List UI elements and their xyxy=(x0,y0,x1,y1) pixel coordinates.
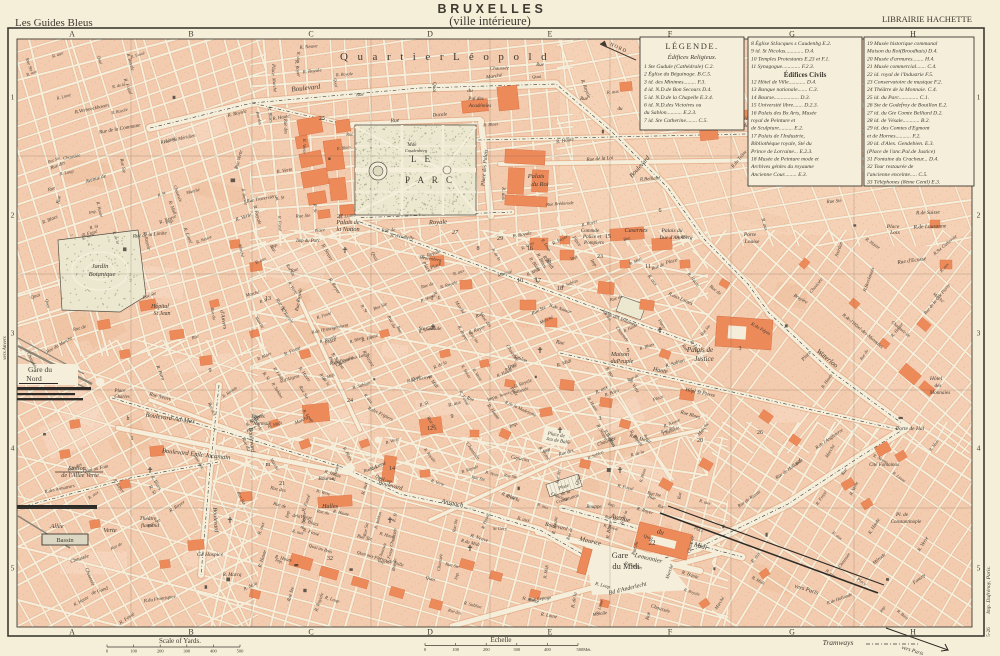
svg-text:Verte: Verte xyxy=(103,527,116,534)
svg-text:10 Temples Protestants E.23 et: 10 Temples Protestants E.23 et F.1. xyxy=(751,56,830,62)
svg-text:15: 15 xyxy=(605,234,611,240)
svg-text:20 Musée d'armures........ H.4: 20 Musée d'armures........ H.4. xyxy=(867,56,935,62)
svg-text:Palais du: Palais du xyxy=(661,228,683,234)
svg-text:3: 3 xyxy=(739,346,742,352)
svg-text:25: 25 xyxy=(319,116,325,122)
svg-text:Quai: Quai xyxy=(532,74,542,79)
svg-text:R. Fossé: R. Fossé xyxy=(277,215,283,232)
svg-text:Louise: Louise xyxy=(744,239,760,245)
svg-text:LÉGENDE.: LÉGENDE. xyxy=(665,41,718,51)
svg-text:Justice: Justice xyxy=(694,355,713,363)
svg-text:12: 12 xyxy=(427,426,433,432)
svg-text:Édifices Religieux.: Édifices Religieux. xyxy=(667,53,717,61)
svg-text:400: 400 xyxy=(210,649,218,654)
svg-text:6: 6 xyxy=(659,208,662,214)
svg-text:Rue de: Rue de xyxy=(380,227,396,234)
svg-text:Quai: Quai xyxy=(431,82,437,93)
svg-text:400: 400 xyxy=(544,647,552,652)
svg-text:3: 3 xyxy=(11,329,15,338)
svg-text:19 Musée historique communal: 19 Musée historique communal xyxy=(867,41,938,47)
svg-text:32: 32 xyxy=(327,556,333,562)
svg-text:200: 200 xyxy=(157,649,165,654)
svg-text:Rouppe: Rouppe xyxy=(585,505,602,510)
svg-text:11 Synagogue............. F.2.: 11 Synagogue............. F.2.3. xyxy=(751,64,814,70)
svg-text:Hôtel: Hôtel xyxy=(929,376,943,382)
svg-text:C: C xyxy=(308,628,313,637)
svg-text:R. Verte: R. Verte xyxy=(301,138,306,154)
svg-text:29: 29 xyxy=(497,236,503,242)
svg-text:Imp du Parc: Imp du Parc xyxy=(295,239,321,244)
svg-text:10: 10 xyxy=(517,278,523,284)
svg-text:300: 300 xyxy=(513,647,521,652)
svg-text:Rue des: Rue des xyxy=(282,118,288,134)
svg-text:St Géry: St Géry xyxy=(493,526,508,531)
svg-text:de l'Allée Verte: de l'Allée Verte xyxy=(61,472,99,479)
svg-text:14 Bourse.................. D.: 14 Bourse.................. D.3. xyxy=(751,95,810,101)
svg-text:royal de Peinture et: royal de Peinture et xyxy=(751,118,796,124)
svg-text:du Roi: du Roi xyxy=(531,181,548,188)
svg-text:des: des xyxy=(935,383,942,389)
svg-text:Place: Place xyxy=(114,389,127,394)
svg-text:20: 20 xyxy=(697,438,703,444)
svg-text:F: F xyxy=(668,628,673,637)
svg-text:Porte: Porte xyxy=(743,232,757,238)
svg-text:30 id. d'Alex. Gendebien. E.3: 30 id. d'Alex. Gendebien. E.3. xyxy=(866,141,934,147)
svg-text:15 Université libre....... D.2: 15 Université libre....... D.2.3. xyxy=(751,103,818,109)
svg-text:9 id. St Nicolas...........: 9 id. St Nicolas............. D.4. xyxy=(751,49,814,55)
svg-text:Chaussée: Chaussée xyxy=(490,66,510,72)
svg-text:26 Ste de Godefroy de Bouillon: 26 Ste de Godefroy de Bouillon E.2. xyxy=(867,102,948,109)
svg-text:26: 26 xyxy=(757,430,763,436)
svg-text:4: 4 xyxy=(11,444,15,453)
svg-text:St Jean: St Jean xyxy=(154,311,171,317)
svg-text:D: D xyxy=(427,628,433,637)
svg-text:5: 5 xyxy=(977,564,981,573)
svg-text:Rue: Rue xyxy=(345,132,353,137)
svg-text:l'ancienne enceinte..... C.5.: l'ancienne enceinte..... C.5. xyxy=(867,172,928,178)
svg-text:2 Église du Béguinage. B.C.5.: 2 Église du Béguinage. B.C.5. xyxy=(644,70,711,78)
svg-text:B: B xyxy=(188,30,193,39)
svg-text:m: m xyxy=(266,462,271,468)
svg-text:(ville intérieure): (ville intérieure) xyxy=(449,14,531,28)
svg-text:vers Anvers: vers Anvers xyxy=(3,336,8,359)
svg-text:Ancienne Cour......... E.3.: Ancienne Cour......... E.3. xyxy=(750,172,807,178)
svg-text:R. aux: R. aux xyxy=(500,186,506,201)
svg-text:Prince de Lorraine... E.2.3.: Prince de Lorraine... E.2.3. xyxy=(750,149,813,155)
svg-text:Rue: Rue xyxy=(389,118,400,125)
svg-text:Académies: Académies xyxy=(468,103,491,109)
svg-text:46: 46 xyxy=(545,258,551,264)
svg-text:3: 3 xyxy=(977,329,981,338)
svg-text:1: 1 xyxy=(11,93,15,102)
svg-text:5: 5 xyxy=(11,564,15,573)
svg-text:22 id. royal de l'Industrie F: 22 id. royal de l'Industrie F.5. xyxy=(867,72,933,78)
svg-text:14: 14 xyxy=(389,466,395,472)
svg-text:12 Hôtel de Ville............: 12 Hôtel de Ville............ D.4. xyxy=(751,80,816,86)
svg-text:Scale of Yards.: Scale of Yards. xyxy=(159,637,201,645)
svg-text:1: 1 xyxy=(131,436,134,442)
svg-text:A: A xyxy=(69,30,75,39)
svg-text:Les Guides Bleus: Les Guides Bleus xyxy=(15,17,93,29)
svg-text:A: A xyxy=(69,628,75,637)
svg-text:17: 17 xyxy=(535,278,541,284)
svg-text:23 Conservatoire de musique F.: 23 Conservatoire de musique F.2. xyxy=(867,80,942,86)
svg-text:5: 5 xyxy=(627,348,630,354)
svg-text:Cité Fontainas: Cité Fontainas xyxy=(869,463,899,468)
svg-text:27: 27 xyxy=(337,214,343,220)
svg-text:1 Ste Gudule (Cathédrale) C.: 1 Ste Gudule (Cathédrale) C.2. xyxy=(644,63,714,70)
svg-text:Loix: Loix xyxy=(889,230,900,236)
svg-text:Gare: Gare xyxy=(612,550,629,560)
svg-text:16 Palais des Bx Arts, Musée: 16 Palais des Bx Arts, Musée xyxy=(751,110,817,116)
svg-text:R.de Lausanne: R.de Lausanne xyxy=(913,223,947,230)
svg-text:Charles: Charles xyxy=(114,395,129,400)
svg-text:28 id. de Vésale............: 28 id. de Vésale............ B.2. xyxy=(867,118,930,124)
svg-text:G: G xyxy=(789,628,795,637)
svg-text:16: 16 xyxy=(527,246,533,252)
svg-text:24: 24 xyxy=(347,398,353,404)
svg-text:LIBRAIRIE HACHETTE: LIBRAIRIE HACHETTE xyxy=(882,14,972,24)
svg-text:et de Hornes........... F.2.: et de Hornes........... F.2. xyxy=(867,133,921,139)
svg-text:2: 2 xyxy=(977,211,981,220)
svg-text:13: 13 xyxy=(265,296,271,302)
svg-text:Porte de Hal: Porte de Hal xyxy=(895,426,925,432)
svg-text:Rue: Rue xyxy=(535,63,544,68)
svg-text:du Sablon........... E.2.3.: du Sablon........... E.2.3. xyxy=(644,110,697,116)
svg-text:500: 500 xyxy=(237,649,245,654)
svg-text:13 Banque nationale....... C.3: 13 Banque nationale....... C.3. xyxy=(751,87,818,93)
svg-text:17 Palais de l'Industrie,: 17 Palais de l'Industrie, xyxy=(751,133,805,139)
svg-text:4: 4 xyxy=(977,444,981,453)
svg-text:Gd Hospice: Gd Hospice xyxy=(197,552,224,558)
svg-text:11: 11 xyxy=(645,264,651,270)
svg-text:Imp. Dufrénoy, Paris.: Imp. Dufrénoy, Paris. xyxy=(985,566,992,615)
svg-text:27: 27 xyxy=(452,230,459,236)
svg-text:du: du xyxy=(618,107,624,112)
svg-text:Coudenberg: Coudenberg xyxy=(405,148,428,153)
svg-text:Pl. de: Pl. de xyxy=(895,512,909,518)
svg-text:500Mèt.: 500Mèt. xyxy=(576,647,591,652)
svg-text:Echelle: Echelle xyxy=(491,636,512,644)
svg-text:18: 18 xyxy=(557,286,563,292)
svg-text:R. St: R. St xyxy=(311,203,317,214)
svg-text:Rue: Rue xyxy=(355,93,365,99)
svg-text:200: 200 xyxy=(483,647,491,652)
svg-text:27 id. du Gte Comte Belliard: 27 id. du Gte Comte Belliard D.2. xyxy=(867,110,943,116)
svg-text:Tramways: Tramways xyxy=(823,638,854,647)
svg-text:5 id. N.D.de la Chapelle E.: 5 id. N.D.de la Chapelle E.3.4. xyxy=(644,95,713,101)
svg-text:300: 300 xyxy=(183,649,191,654)
svg-text:100: 100 xyxy=(452,647,460,652)
svg-text:E: E xyxy=(548,628,553,637)
svg-text:8 Église StJacques s Caudenbg: 8 Église StJacques s Caudenbg E.2. xyxy=(751,39,831,47)
svg-text:33 Téléphones (8ème Centl) E.: 33 Téléphones (8ème Centl) E.3. xyxy=(866,179,940,186)
svg-text:32 Tour restaurée de: 32 Tour restaurée de xyxy=(866,164,914,170)
svg-text:Archives génles du royaume: Archives génles du royaume xyxy=(750,164,814,170)
svg-text:Maison du Roi(Broodhuis) D.4.: Maison du Roi(Broodhuis) D.4. xyxy=(866,48,938,55)
svg-text:la Nation: la Nation xyxy=(336,226,359,233)
svg-text:6 id. N.D.des Victoires ou: 6 id. N.D.des Victoires ou xyxy=(644,103,702,109)
svg-text:Nord: Nord xyxy=(26,374,42,383)
svg-text:7 id. Ste Catherine........: 7 id. Ste Catherine........ C.5. xyxy=(644,118,708,124)
svg-text:8: 8 xyxy=(477,246,480,252)
svg-text:Botanique: Botanique xyxy=(89,271,116,278)
svg-text:Casernes: Casernes xyxy=(624,227,648,234)
svg-text:D: D xyxy=(427,30,433,39)
svg-text:21: 21 xyxy=(279,481,285,487)
svg-text:23: 23 xyxy=(597,254,603,260)
svg-text:Place: Place xyxy=(270,63,276,77)
svg-text:21 Musée commercial....... C.4: 21 Musée commercial....... C.4. xyxy=(867,64,937,70)
svg-text:29 id. des Comtes d'Egmont: 29 id. des Comtes d'Egmont xyxy=(867,126,930,132)
svg-text:h: h xyxy=(127,416,130,422)
svg-text:4 id. N.D.de Bon Secours D.: 4 id. N.D.de Bon Secours D.4. xyxy=(644,87,712,93)
svg-text:3 id. des Minimes.........: 3 id. des Minimes......... F.3. xyxy=(643,79,706,85)
svg-text:Allée: Allée xyxy=(49,523,63,530)
svg-text:Palais: Palais xyxy=(527,173,545,180)
svg-text:Gare du: Gare du xyxy=(28,365,52,374)
svg-text:E: E xyxy=(548,30,553,39)
svg-text:C: C xyxy=(308,30,313,39)
svg-text:de Sculpture.......... E.2.: de Sculpture.......... E.2. xyxy=(751,126,803,132)
svg-text:25 id. du Parc..............: 25 id. du Parc.............. C.1. xyxy=(867,95,929,101)
svg-text:du: du xyxy=(467,88,473,94)
svg-text:100: 100 xyxy=(130,649,138,654)
svg-text:duPeuple: duPeuple xyxy=(611,359,634,365)
svg-text:R. Marcq: R. Marcq xyxy=(222,573,242,578)
svg-text:3: 3 xyxy=(599,416,602,422)
svg-text:Royale: Royale xyxy=(428,219,447,227)
svg-text:R.de Suisse: R.de Suisse xyxy=(915,210,941,217)
svg-text:Jardin: Jardin xyxy=(92,263,109,270)
svg-text:Pompiers: Pompiers xyxy=(583,240,604,246)
svg-text:P A R C: P A R C xyxy=(405,175,455,185)
svg-text:2: 2 xyxy=(11,211,15,220)
svg-text:9: 9 xyxy=(209,368,212,374)
svg-text:Q u a r t i e r L é o p o l: Q u a r t i e r L é o p o l d xyxy=(340,51,550,63)
svg-text:Bassin: Bassin xyxy=(56,537,74,544)
svg-text:1: 1 xyxy=(431,296,434,302)
svg-text:18 Musée de Peinture mode et: 18 Musée de Peinture mode et xyxy=(751,157,819,163)
svg-text:5-26: 5-26 xyxy=(987,627,992,637)
svg-text:Pal des: Pal des xyxy=(467,96,483,102)
svg-text:B: B xyxy=(188,628,193,637)
svg-text:Édifices Civils: Édifices Civils xyxy=(784,71,827,79)
svg-text:L E: L E xyxy=(411,154,433,164)
svg-text:31 Fontaine du Cracheur... D.4: 31 Fontaine du Cracheur... D.4. xyxy=(866,157,939,163)
svg-text:(Place de l'anc.Pal.de Justice: (Place de l'anc.Pal.de Justice) xyxy=(867,148,935,155)
svg-text:Constantinople: Constantinople xyxy=(891,520,922,525)
svg-text:24 Théâtre de la Monnaie. C.4.: 24 Théâtre de la Monnaie. C.4. xyxy=(867,87,937,93)
svg-text:Hôpital: Hôpital xyxy=(150,304,169,310)
svg-text:9: 9 xyxy=(451,414,454,420)
svg-text:H: H xyxy=(910,628,916,637)
svg-text:1: 1 xyxy=(977,93,981,102)
svg-text:Monnaies: Monnaies xyxy=(929,390,950,396)
svg-text:Bibliothèque royale, Sté du: Bibliothèque royale, Sté du xyxy=(751,141,812,147)
